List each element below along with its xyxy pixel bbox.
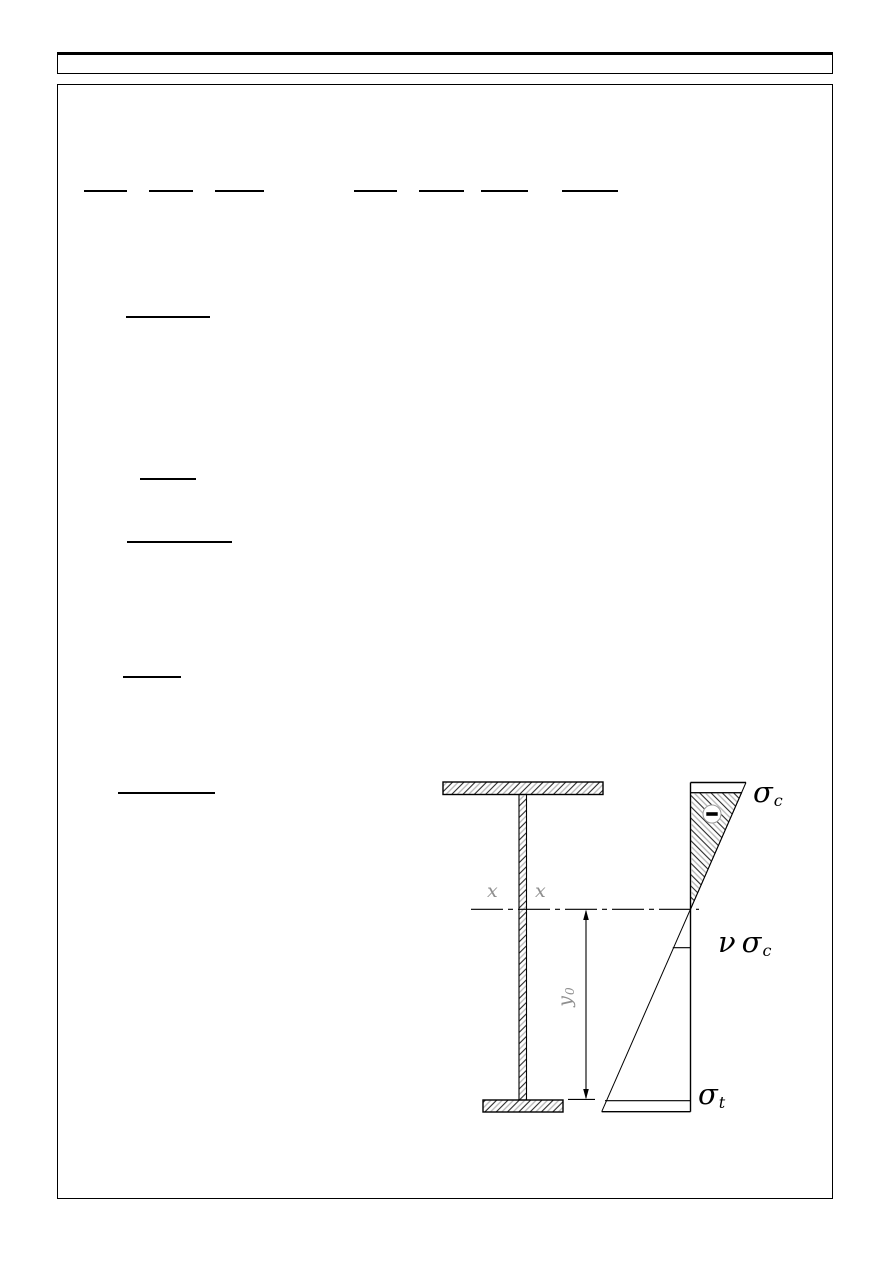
sigma-c-subscript: c xyxy=(762,941,771,960)
stress-distribution-figure: σc νσc σt x x y0 xyxy=(435,775,800,1125)
sigma-c-subscript: c xyxy=(774,791,783,810)
y0-subscript: 0 xyxy=(563,987,577,995)
underline xyxy=(140,478,196,480)
label-sigma-c: σc xyxy=(753,778,783,809)
blank-line xyxy=(215,190,264,192)
label-sigma-t: σt xyxy=(698,1080,725,1111)
blank-line xyxy=(562,190,618,192)
sigma-symbol: σ xyxy=(753,775,773,809)
blank-line xyxy=(354,190,397,192)
label-nu-sigma-c: νσc xyxy=(718,928,771,959)
sigma-symbol: σ xyxy=(698,1077,718,1111)
blank-line xyxy=(419,190,464,192)
label-y0: y0 xyxy=(556,987,576,1006)
label-x-right: x xyxy=(535,882,546,901)
underline xyxy=(118,792,215,794)
blank-line xyxy=(149,190,193,192)
underline xyxy=(126,316,210,318)
underline xyxy=(123,676,181,678)
header-box xyxy=(57,52,833,74)
beam-web xyxy=(519,795,527,1101)
blank-line xyxy=(84,190,127,192)
blank-line xyxy=(481,190,528,192)
beam-top-flange xyxy=(443,782,603,795)
document-page: σc νσc σt x x y0 xyxy=(0,0,893,1263)
y-symbol: y xyxy=(554,996,576,1007)
dimension-arrow-up-icon xyxy=(583,910,589,920)
sigma-symbol: σ xyxy=(742,925,762,959)
sigma-t-subscript: t xyxy=(719,1093,725,1112)
underline xyxy=(127,541,232,543)
nu-symbol: ν xyxy=(718,925,736,959)
label-x-left: x xyxy=(487,882,498,901)
beam-bottom-flange xyxy=(483,1100,563,1112)
dimension-arrow-down-icon xyxy=(583,1089,589,1099)
